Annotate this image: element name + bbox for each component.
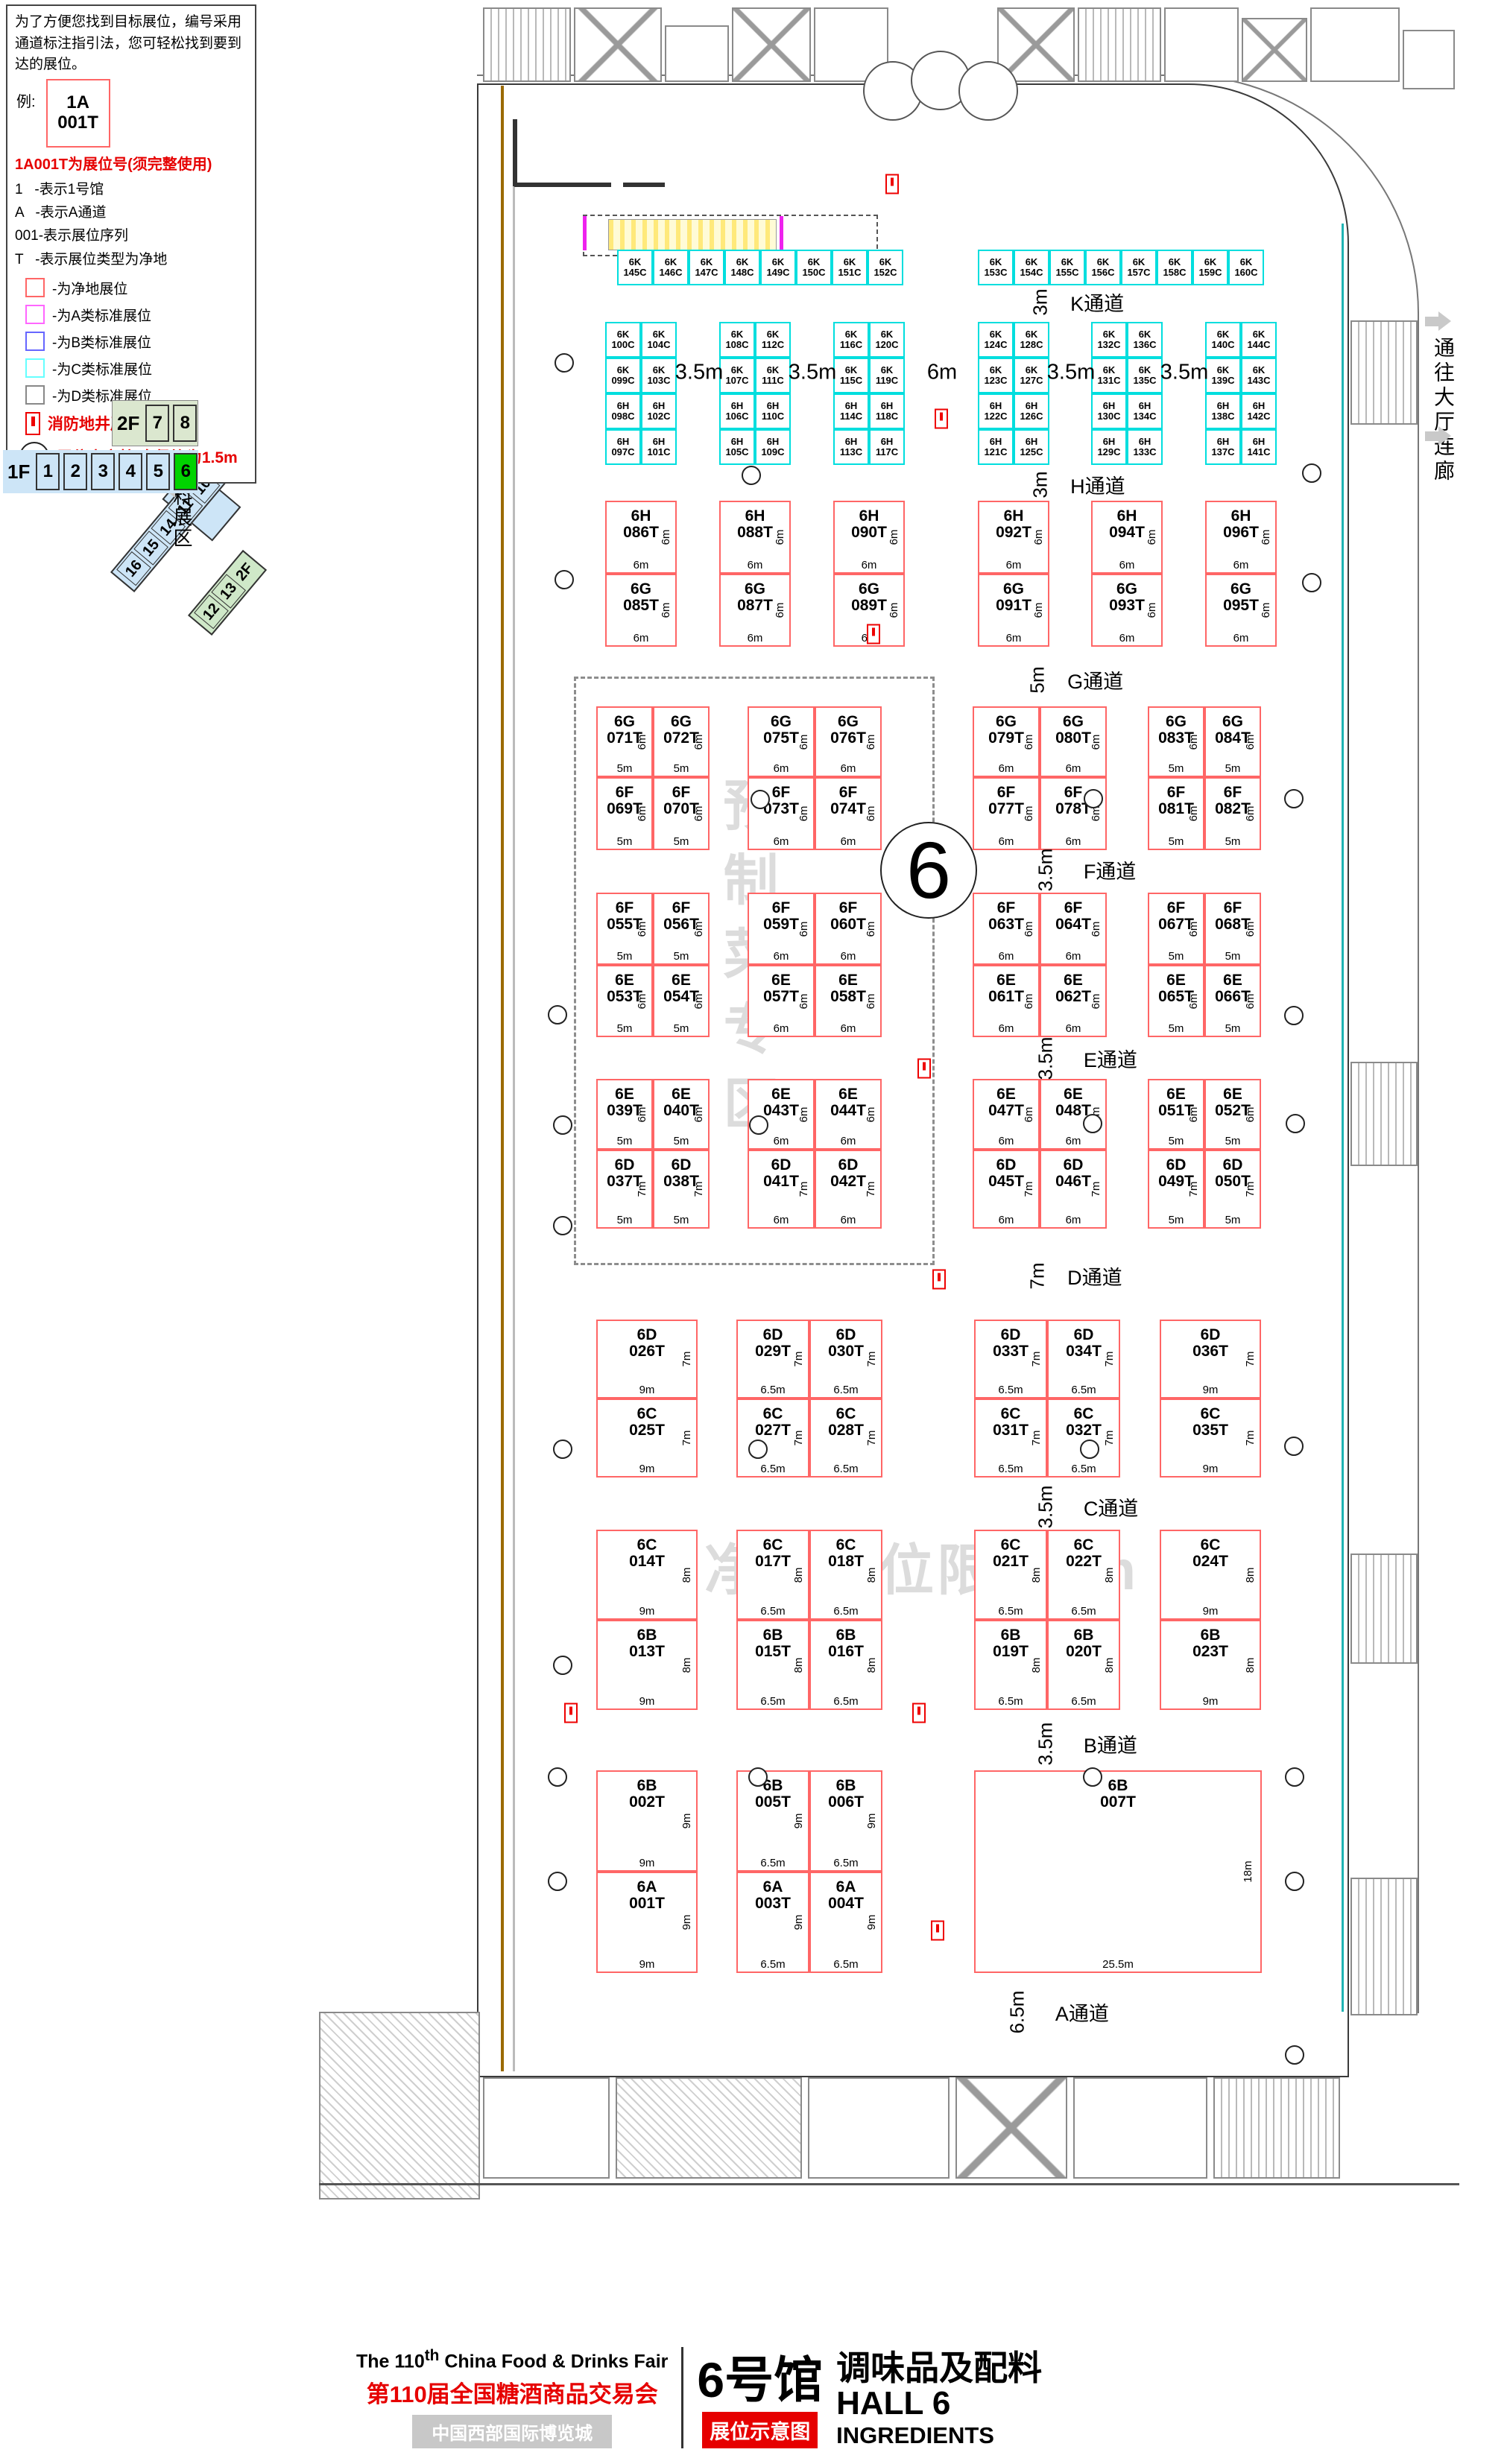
booth-id: 6A004T — [811, 1879, 881, 1912]
booth-6F060T: 6F060T6m6m — [815, 893, 882, 965]
booth-depth-label: 6m — [1260, 603, 1272, 618]
wall-line — [513, 119, 515, 2071]
fire-well-icon — [917, 1059, 931, 1079]
booth-width-label: 6.5m — [976, 1463, 1046, 1475]
booth-depth-label: 6m — [1187, 806, 1200, 822]
booth-6D045T: 6D045T6m7m — [973, 1150, 1040, 1229]
aisle-name: K通道 — [1070, 288, 1124, 317]
booth-id: 6K147C — [690, 251, 723, 284]
booth-6H101C: 6H101C — [641, 429, 677, 465]
swatch-#66ffff — [25, 358, 45, 378]
booth-width-label: 9m — [1161, 1605, 1260, 1618]
structural-column — [751, 790, 770, 809]
booth-6E065T: 6E065T5m6m — [1148, 965, 1204, 1037]
hall-number-marker: 6 — [880, 822, 977, 919]
minimap-1f-label: 1F — [7, 460, 30, 484]
booth-6G095T: 6G095T6m6m — [1205, 574, 1277, 647]
booth-6E066T: 6E066T5m6m — [1204, 965, 1261, 1037]
booth-id: 6H129C — [1093, 431, 1125, 463]
booth-6G079T: 6G079T6m6m — [973, 706, 1040, 777]
booth-6D038T: 6D038T5m7m — [653, 1150, 710, 1229]
structural-column — [1080, 1440, 1099, 1459]
fair-title-en: The 110th China Food & Drinks Fair — [356, 2347, 668, 2372]
spacing-dim: 3.5m — [789, 361, 836, 385]
swatch-#ff66ff — [25, 305, 45, 324]
hall-number: 6 — [906, 830, 951, 910]
structural-column — [555, 570, 574, 589]
booth-6H097C: 6H097C — [605, 429, 641, 465]
booth-width-label: 9m — [1161, 1695, 1260, 1708]
booth-width-label: 9m — [598, 1857, 696, 1869]
code-line: T -表示展位类型为净地 — [15, 248, 247, 271]
booth-6K147C: 6K147C — [689, 250, 724, 285]
booth-6H122C: 6H122C — [978, 393, 1014, 429]
booth-width-label: 5m — [1149, 1022, 1203, 1035]
structural-column — [749, 1115, 768, 1135]
booth-6K127C: 6K127C — [1014, 358, 1049, 393]
minimap-hall-5: 5 — [146, 453, 170, 490]
booth-6H142C: 6H142C — [1241, 393, 1277, 429]
booth-id: 6K160C — [1230, 251, 1263, 284]
booth-depth-label: 6m — [692, 1106, 705, 1122]
booth-id: 6H106C — [721, 395, 753, 428]
booth-depth-label: 6m — [636, 1106, 648, 1122]
booth-6E058T: 6E058T6m6m — [815, 965, 882, 1037]
spacing-dim: 6m — [927, 361, 957, 385]
booth-depth-label: 8m — [792, 1657, 805, 1673]
room-box — [1073, 2077, 1207, 2179]
booth-width-label: 5m — [654, 1135, 708, 1147]
booth-6K140C: 6K140C — [1205, 322, 1241, 358]
legend-swatch-row: -为C类标准展位 — [15, 358, 247, 379]
booth-depth-label: 6m — [692, 734, 705, 750]
structural-column — [1284, 1437, 1304, 1456]
booth-depth-label: 7m — [692, 1182, 705, 1197]
booth-6K135C: 6K135C — [1127, 358, 1163, 393]
booth-depth-label: 6m — [636, 921, 648, 937]
booth-id: 6C014T — [598, 1537, 696, 1570]
booth-id: 6K111C — [756, 359, 789, 392]
booth-id: 6H142C — [1242, 395, 1275, 428]
aisle-D通道: 7mD通道 — [1024, 1259, 1122, 1292]
booth-id: 6K115C — [835, 359, 868, 392]
booth-depth-label: 6m — [692, 993, 705, 1009]
booth-6C032T: 6C032T6.5m7m — [1047, 1399, 1120, 1478]
booth-width-label: 25.5m — [976, 1958, 1260, 1971]
aisle-G通道: 5mG通道 — [1024, 663, 1123, 696]
minimap-hall-1: 1 — [36, 453, 60, 490]
booth-6C024T: 6C024T9m8m — [1160, 1530, 1261, 1620]
booth-6D037T: 6D037T5m7m — [596, 1150, 653, 1229]
example-booth-line2: 001T — [57, 113, 98, 133]
booth-width-label: 5m — [654, 1022, 708, 1035]
booth-6H094T: 6H094T6m6m — [1091, 501, 1163, 574]
booth-width-label: 6m — [835, 559, 903, 571]
booth-depth-label: 6m — [797, 806, 810, 822]
booth-width-label: 6m — [607, 632, 675, 644]
booth-6F059T: 6F059T6m6m — [748, 893, 815, 965]
booth-width-label: 6m — [749, 835, 813, 848]
booth-6E044T: 6E044T6m6m — [815, 1079, 882, 1150]
booth-6B013T: 6B013T9m8m — [596, 1620, 698, 1710]
booth-width-label: 6m — [1207, 559, 1275, 571]
booth-depth-label: 7m — [1030, 1352, 1043, 1367]
fire-well-icon — [885, 174, 899, 194]
booth-6E039T: 6E039T5m6m — [596, 1079, 653, 1150]
minimap-hall-6: 6 — [174, 453, 198, 490]
booth-id: 6K140C — [1207, 323, 1239, 356]
booth-depth-label: 6m — [1090, 993, 1102, 1009]
booth-depth-label: 6m — [888, 603, 900, 618]
booth-depth-label: 6m — [1090, 734, 1102, 750]
room-box — [1078, 7, 1161, 82]
booth-id: 6H118C — [871, 395, 903, 428]
booth-depth-label: 6m — [1023, 921, 1035, 937]
fire-well-icon — [564, 1703, 578, 1723]
booth-6E043T: 6E043T6m6m — [748, 1079, 815, 1150]
booth-depth-label: 6m — [1090, 921, 1102, 937]
booth-id: 6K104C — [642, 323, 675, 356]
aisle-C通道: 3.5mC通道 — [1024, 1490, 1138, 1523]
booth-depth-label: 8m — [680, 1657, 693, 1673]
booth-6H129C: 6H129C — [1091, 429, 1127, 465]
booth-6F064T: 6F064T6m6m — [1040, 893, 1107, 965]
booth-6D026T: 6D026T9m7m — [596, 1320, 698, 1399]
booth-width-label: 6.5m — [1049, 1384, 1119, 1396]
booth-width-label: 6.5m — [811, 1605, 881, 1618]
booth-width-label: 6.5m — [976, 1695, 1046, 1708]
structural-column — [1284, 789, 1304, 808]
swatch-#888888 — [25, 385, 45, 405]
example-booth: 1A 001T — [46, 79, 110, 148]
booth-id: 6H101C — [642, 431, 675, 463]
booth-depth-label: 7m — [1030, 1431, 1043, 1446]
booth-width-label: 6m — [1041, 1135, 1105, 1147]
booth-width-label: 6.5m — [1049, 1463, 1119, 1475]
structural-column — [1286, 1114, 1305, 1133]
booth-6E061T: 6E061T6m6m — [973, 965, 1040, 1037]
structural-column — [742, 466, 761, 485]
booth-depth-label: 7m — [1023, 1182, 1035, 1197]
wall-line — [319, 2183, 1459, 2185]
booth-width-label: 6m — [979, 632, 1048, 644]
aisle-A通道: 6.5mA通道 — [996, 1995, 1109, 2028]
booth-width-label: 5m — [654, 835, 708, 848]
booth-id: 6H114C — [835, 395, 868, 428]
booth-6A003T: 6A003T6.5m9m — [736, 1872, 809, 1973]
legend-swatch-row: -为B类标准展位 — [15, 332, 247, 352]
booth-id: 6C018T — [811, 1537, 881, 1570]
aisle-width: 3.5m — [1034, 1722, 1057, 1765]
booth-6E051T: 6E051T5m6m — [1148, 1079, 1204, 1150]
booth-6G080T: 6G080T6m6m — [1040, 706, 1107, 777]
booth-id: 6K150C — [797, 251, 830, 284]
booth-depth-label: 6m — [1187, 734, 1200, 750]
booth-6C018T: 6C018T6.5m8m — [809, 1530, 882, 1620]
booth-depth-label: 6m — [1032, 603, 1045, 618]
aisle-width: 5m — [1026, 666, 1049, 693]
aisle-width: 3.5m — [1034, 1036, 1057, 1080]
wall-line — [623, 183, 665, 187]
booth-depth-label: 6m — [1023, 993, 1035, 1009]
booth-depth-label: 8m — [1244, 1657, 1257, 1673]
booth-width-label: 6.5m — [738, 1384, 808, 1396]
booth-6F074T: 6F074T6m6m — [815, 777, 882, 850]
booth-6F055T: 6F055T5m6m — [596, 893, 653, 965]
booth-6H126C: 6H126C — [1014, 393, 1049, 429]
booth-6F063T: 6F063T6m6m — [973, 893, 1040, 965]
structural-column — [1284, 1006, 1304, 1025]
booth-6H137C: 6H137C — [1205, 429, 1241, 465]
booth-width-label: 6.5m — [1049, 1605, 1119, 1618]
booth-width-label: 5m — [1206, 950, 1260, 963]
aisle-name: H通道 — [1070, 470, 1125, 499]
hall-category-en: INGREDIENTS — [836, 2422, 1042, 2449]
booth-6K103C: 6K103C — [641, 358, 677, 393]
booth-id: 6A003T — [738, 1879, 808, 1912]
booth-6K131C: 6K131C — [1091, 358, 1127, 393]
booth-width-label: 6m — [816, 1135, 880, 1147]
booth-id: 6B023T — [1161, 1627, 1260, 1660]
example-booth-line1: 1A — [66, 93, 89, 113]
booth-6H114C: 6H114C — [833, 393, 869, 429]
aisle-name: G通道 — [1067, 665, 1123, 694]
booth-width-label: 6m — [1041, 1022, 1105, 1035]
swatch-label: -为A类标准展位 — [52, 305, 151, 325]
booth-width-label: 5m — [598, 762, 651, 775]
booth-id: 6H113C — [835, 431, 868, 463]
footer: The 110th China Food & Drinks Fair 第110届… — [356, 2347, 1042, 2448]
booth-id: 6K103C — [642, 359, 675, 392]
booth-id: 6B002T — [598, 1778, 696, 1811]
booth-6K107C: 6K107C — [719, 358, 755, 393]
booth-width-label: 5m — [598, 1135, 651, 1147]
booth-width-label: 6.5m — [976, 1384, 1046, 1396]
booth-id: 6K145C — [619, 251, 651, 284]
arrow-right-icon — [1425, 311, 1451, 331]
booth-depth-label: 8m — [1103, 1567, 1116, 1583]
booth-id: 6K143C — [1242, 359, 1275, 392]
booth-id: 6K153C — [979, 251, 1012, 284]
booth-width-label: 6m — [749, 950, 813, 963]
aisle-E通道: 3.5mE通道 — [1024, 1042, 1137, 1074]
booth-width-label: 9m — [1161, 1463, 1260, 1475]
code-line: A -表示A通道 — [15, 201, 247, 224]
booth-depth-label: 7m — [865, 1431, 878, 1446]
structural-column — [1084, 789, 1103, 808]
booth-width-label: 6m — [1207, 632, 1275, 644]
booth-6G085T: 6G085T6m6m — [605, 574, 677, 647]
booth-id: 6B013T — [598, 1627, 696, 1660]
booth-depth-label: 9m — [865, 1915, 878, 1931]
booth-id: 6B020T — [1049, 1627, 1119, 1660]
room-box — [665, 25, 729, 82]
booth-6G076T: 6G076T6m6m — [815, 706, 882, 777]
minimap-2f: 2F 78 — [112, 400, 198, 446]
aisle-width: 6.5m — [1005, 1990, 1029, 2033]
footer-divider — [681, 2347, 683, 2448]
booth-6K151C: 6K151C — [832, 250, 868, 285]
booth-width-label: 6.5m — [738, 1463, 808, 1475]
booth-6E047T: 6E047T6m6m — [973, 1079, 1040, 1150]
booth-6C021T: 6C021T6.5m8m — [974, 1530, 1047, 1620]
booth-width-label: 6m — [816, 1022, 880, 1035]
booth-id: 6C021T — [976, 1537, 1046, 1570]
minimap-hall-2: 2 — [63, 453, 87, 490]
booth-6C014T: 6C014T9m8m — [596, 1530, 698, 1620]
booth-6H133C: 6H133C — [1127, 429, 1163, 465]
booth-depth-label: 6m — [1023, 806, 1035, 822]
booth-depth-label: 6m — [1187, 1106, 1200, 1122]
booth-depth-label: 6m — [797, 1106, 810, 1122]
door-marker — [583, 216, 587, 250]
booth-6K119C: 6K119C — [869, 358, 905, 393]
booth-depth-label: 8m — [1103, 1657, 1116, 1673]
booth-6K111C: 6K111C — [755, 358, 791, 393]
booth-id: 6B016T — [811, 1627, 881, 1660]
booth-depth-label: 9m — [792, 1915, 805, 1931]
booth-id: 6H097C — [607, 431, 639, 463]
booth-6E054T: 6E054T5m6m — [653, 965, 710, 1037]
booth-6K128C: 6K128C — [1014, 322, 1049, 358]
hall-name-cn: 6号馆 — [697, 2355, 823, 2404]
booth-id: 6C024T — [1161, 1537, 1260, 1570]
booth-6K099C: 6K099C — [605, 358, 641, 393]
structural-column — [553, 1656, 572, 1675]
booth-depth-label: 7m — [680, 1431, 693, 1446]
room-box — [1350, 320, 1418, 425]
booth-id: 6B019T — [976, 1627, 1046, 1660]
booth-6H090T: 6H090T6m6m — [833, 501, 905, 574]
booth-6F082T: 6F082T5m6m — [1204, 777, 1261, 850]
booth-6K160C: 6K160C — [1228, 250, 1264, 285]
booth-depth-label: 7m — [865, 1352, 878, 1367]
code-lines: 1 -表示1号馆A -表示A通道001-表示展位序列T -表示展位类型为净地 — [15, 178, 247, 271]
room-box — [1350, 1878, 1418, 2015]
booth-id: 6H098C — [607, 395, 639, 428]
booth-6K158C: 6K158C — [1157, 250, 1192, 285]
booth-id: 6K124C — [979, 323, 1012, 356]
booth-6D034T: 6D034T6.5m7m — [1047, 1320, 1120, 1399]
booth-id: 6K119C — [871, 359, 903, 392]
venue-name: 中国西部国际博览城 — [412, 2415, 612, 2448]
booth-id: 6A001T — [598, 1879, 696, 1912]
booth-width-label: 6m — [974, 1022, 1038, 1035]
aisle-width: 7m — [1026, 1262, 1049, 1289]
wall-line — [501, 86, 504, 2071]
booth-id: 6C022T — [1049, 1537, 1119, 1570]
minimap-hall-4: 4 — [119, 453, 142, 490]
booth-width-label: 9m — [1161, 1384, 1260, 1396]
booth-6K112C: 6K112C — [755, 322, 791, 358]
booth-depth-label: 8m — [865, 1657, 878, 1673]
room-box — [1213, 2077, 1340, 2179]
booth-width-label: 6m — [974, 762, 1038, 775]
booth-width-label: 5m — [1149, 1135, 1203, 1147]
booth-depth-label: 6m — [797, 734, 810, 750]
booth-id: 6K108C — [721, 323, 753, 356]
room-box — [1403, 30, 1455, 89]
booth-id: 6H133C — [1128, 431, 1161, 463]
booth-depth-label: 9m — [680, 1814, 693, 1829]
booth-id: 6K112C — [756, 323, 789, 356]
booth-6H088T: 6H088T6m6m — [719, 501, 791, 574]
booth-width-label: 5m — [598, 950, 651, 963]
booth-depth-label: 6m — [797, 993, 810, 1009]
booth-6K104C: 6K104C — [641, 322, 677, 358]
booth-width-label: 5m — [654, 1214, 708, 1226]
fair-title-cn: 第110届全国糖酒商品交易会 — [367, 2375, 658, 2409]
booth-6K146C: 6K146C — [653, 250, 689, 285]
arrow-right-icon — [1425, 426, 1451, 446]
booth-6H086T: 6H086T6m6m — [605, 501, 677, 574]
booth-width-label: 6.5m — [976, 1605, 1046, 1618]
example-label: 例: — [16, 79, 36, 111]
legend-swatch-row: -为净地展位 — [15, 278, 247, 298]
booth-id: 6K144C — [1242, 323, 1275, 356]
booth-6C035T: 6C035T9m7m — [1160, 1399, 1261, 1478]
booth-6E040T: 6E040T5m6m — [653, 1079, 710, 1150]
booth-width-label: 6m — [1093, 632, 1161, 644]
minimap-2f-label: 2F — [117, 412, 139, 435]
booth-depth-label: 6m — [1244, 993, 1257, 1009]
swatch-label: -为C类标准展位 — [52, 358, 152, 379]
booth-6D030T: 6D030T6.5m7m — [809, 1320, 882, 1399]
booth-id: 6K155C — [1051, 251, 1084, 284]
booth-6K139C: 6K139C — [1205, 358, 1241, 393]
aisle-name: F通道 — [1084, 855, 1137, 884]
booth-id: 6H102C — [642, 395, 675, 428]
booth-depth-label: 6m — [1244, 921, 1257, 937]
swatch-label: -为净地展位 — [52, 278, 127, 298]
booth-width-label: 5m — [598, 1022, 651, 1035]
booth-id: 6H134C — [1128, 395, 1161, 428]
booth-width-label: 6m — [1041, 950, 1105, 963]
booth-6H117C: 6H117C — [869, 429, 905, 465]
booth-6F056T: 6F056T5m6m — [653, 893, 710, 965]
booth-depth-label: 6m — [1023, 734, 1035, 750]
booth-width-label: 6m — [816, 1214, 880, 1226]
booth-6D029T: 6D029T6.5m7m — [736, 1320, 809, 1399]
booth-id: 6K146C — [654, 251, 687, 284]
booth-depth-label: 9m — [865, 1814, 878, 1829]
room-box — [1164, 7, 1239, 82]
legend-intro: 为了方便您找到目标展位，编号采用通道标注指引法，您可轻松找到要到达的展位。 — [15, 12, 247, 76]
booth-id: 6K156C — [1087, 251, 1119, 284]
booth-6H098C: 6H098C — [605, 393, 641, 429]
room-box — [1242, 18, 1307, 82]
booth-depth-label: 8m — [865, 1567, 878, 1583]
minimap-wing-2f: 12132F — [188, 550, 267, 636]
structural-column — [1083, 1767, 1102, 1787]
booth-width-label: 6m — [749, 1214, 813, 1226]
booth-id: 6H109C — [756, 431, 789, 463]
booth-id: 6K159C — [1194, 251, 1227, 284]
booth-depth-label: 18m — [1242, 1860, 1254, 1882]
booth-depth-label: 6m — [1244, 1106, 1257, 1122]
booth-depth-label: 6m — [1244, 734, 1257, 750]
booth-depth-label: 8m — [1030, 1567, 1043, 1583]
booth-width-label: 5m — [1206, 1135, 1260, 1147]
room-box — [483, 7, 571, 82]
booth-6K115C: 6K115C — [833, 358, 869, 393]
aisle-B通道: 3.5mB通道 — [1024, 1727, 1137, 1760]
booth-width-label: 6m — [749, 1135, 813, 1147]
booth-id: 6K116C — [835, 323, 868, 356]
booth-width-label: 9m — [598, 1605, 696, 1618]
booth-6E062T: 6E062T6m6m — [1040, 965, 1107, 1037]
legend-swatch-row: -为A类标准展位 — [15, 305, 247, 325]
